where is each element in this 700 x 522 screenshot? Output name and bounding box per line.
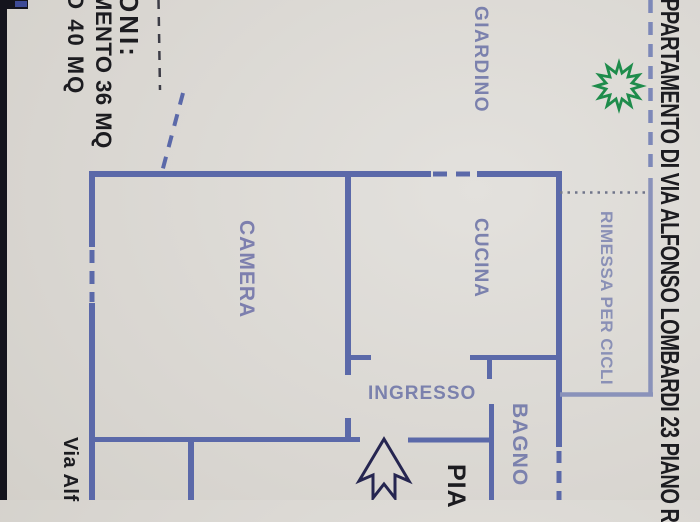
photo-edge-blue-sliver — [15, 1, 27, 7]
note-line-2: MENTO 36 MQ — [92, 0, 114, 149]
note-line-1: ONI: — [116, 0, 142, 59]
tree-icon — [596, 63, 642, 109]
street-label: Via Alf — [60, 437, 80, 502]
plan-word-label: PIA — [443, 464, 468, 509]
gate-diagonal-dashed — [162, 93, 183, 172]
photo-edge-left — [0, 0, 7, 500]
title-right: PPARTAMENTO DI VIA ALFONSO LOMBARDI 23 P… — [656, 0, 682, 522]
property-dashed-line — [159, 0, 161, 90]
room-label-camera: CAMERA — [236, 220, 257, 318]
room-label-cucina: CUCINA — [471, 218, 490, 298]
floorplan-photo: { "title_right": "PPARTAMENTO DI VIA ALF… — [0, 0, 700, 500]
entrance-arrow-icon — [359, 439, 409, 498]
room-label-rimessa: RIMESSA PER CICLI — [598, 211, 615, 385]
note-line-3: O 40 MQ — [64, 0, 86, 95]
room-label-bagno: BAGNO — [509, 403, 530, 486]
room-label-ingresso: INGRESSO — [368, 383, 476, 405]
room-label-giardino: GIARDINO — [471, 6, 490, 113]
